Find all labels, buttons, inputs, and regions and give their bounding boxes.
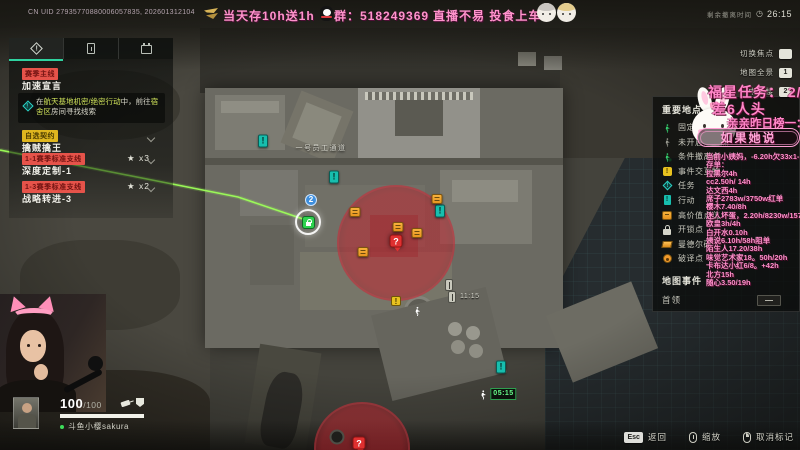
- desc-text: 中，前往: [121, 97, 151, 106]
- operation-marker[interactable]: !: [329, 171, 339, 184]
- runner-conditional-icon: [662, 152, 672, 162]
- boss-label: 首领: [662, 294, 681, 306]
- tab-missions[interactable]: [9, 38, 63, 59]
- unlock-point-marker[interactable]: [295, 209, 321, 235]
- operation-tab-icon: [87, 43, 95, 54]
- uid-text: CN UID 27935770880006057835, 20260131210…: [28, 9, 195, 16]
- hp-fill: [60, 414, 144, 418]
- unlock-icon: [662, 225, 672, 235]
- player-name-row: 斗鱼小樱sakura: [60, 421, 129, 432]
- esc-key-badge: Esc: [624, 432, 642, 443]
- microphone-icon: [88, 356, 103, 371]
- streamer-hand: [34, 364, 48, 380]
- player-name: 斗鱼小樱sakura: [68, 421, 129, 432]
- legend-label: 行动: [678, 195, 695, 206]
- overlay-pill-label: 如果她说: [720, 129, 776, 146]
- high-value-marker[interactable]: [350, 207, 361, 217]
- evac-timer-label: 剩余撤离时间: [707, 9, 752, 19]
- ping-marker[interactable]: 2: [305, 194, 317, 206]
- closed-point-marker[interactable]: [330, 430, 345, 445]
- boss-question-marker[interactable]: ?: [353, 437, 366, 450]
- eye: [38, 344, 41, 347]
- hotkey-switch-focus[interactable]: 切换焦点: [740, 48, 792, 59]
- boss-event-row: 首领 —: [662, 294, 799, 306]
- mission-panel: 赛季主线 加速宣言 在航天基地机密/绝密行动中，前往宿舍区房间寻找线索 自选契约…: [9, 38, 173, 218]
- mission-diamond-icon: [22, 100, 33, 111]
- desc-highlight: 航天基地机密/绝密行动: [44, 97, 121, 106]
- hp-max: /100: [83, 400, 102, 410]
- top-bar: CN UID 27935770880006057835, 20260131210…: [0, 0, 800, 28]
- mouse-right-icon: [743, 432, 751, 443]
- evac-time-value: 26:15: [767, 9, 792, 19]
- evac-timer: 剩余撤离时间 ◷ 26:15: [707, 9, 792, 19]
- operation-icon: !: [662, 195, 672, 205]
- mandel-brick-icon: [662, 239, 672, 249]
- extraction-marker[interactable]: 05:15: [477, 388, 516, 400]
- mission-tabbar: [9, 38, 173, 59]
- keycard-door-marker[interactable]: 11:15: [448, 291, 456, 303]
- tab-events[interactable]: [118, 38, 173, 59]
- hotkey-label: 地图全景: [740, 67, 774, 78]
- zoom-control[interactable]: 缩放: [689, 431, 721, 443]
- tab-operations[interactable]: [63, 38, 118, 59]
- legend-label: 破译点: [678, 253, 704, 264]
- unmark-label: 取消标记: [756, 431, 794, 443]
- event-interact-icon: !: [662, 166, 672, 176]
- unmark-button[interactable]: 取消标记: [743, 431, 794, 443]
- qq-penguin-icon: [320, 6, 333, 21]
- hotkey-map-overview[interactable]: 地图全景 1: [740, 67, 792, 78]
- boss-toggle[interactable]: —: [757, 295, 781, 306]
- high-value-marker[interactable]: [432, 194, 443, 204]
- boss-question-marker[interactable]: ?: [390, 235, 403, 248]
- side2-title[interactable]: 战略转进-3: [22, 192, 72, 205]
- zoom-label: 缩放: [702, 431, 721, 443]
- mouse-scroll-icon: [689, 432, 697, 443]
- avatar: [13, 397, 39, 429]
- hp-current: 100: [60, 396, 83, 411]
- game-screen: !!!!??211:1505:15! 一号员工通道 CN UID 2793577…: [0, 0, 800, 450]
- side1-title[interactable]: 深度定制-1: [22, 164, 72, 177]
- keycard-door-marker[interactable]: [445, 279, 453, 291]
- desc-text: 在: [36, 97, 44, 106]
- promo-recharge: 当天存10h送1h: [223, 7, 315, 24]
- key-badge: 1: [779, 68, 792, 78]
- hp-value: 100/100: [60, 396, 102, 411]
- extraction-marker[interactable]: [412, 306, 423, 317]
- headphone-band: [12, 308, 56, 324]
- microphone-arm: [63, 368, 103, 393]
- legend-label: 开锁点: [678, 224, 704, 235]
- chibi-avatar: [557, 3, 576, 22]
- eye: [27, 344, 30, 347]
- operation-marker[interactable]: !: [496, 361, 506, 374]
- donor-list: 当前小姨妈，-6.20h欠33x1-存单：拉黑尔4hcc2.50h/ 14h达文…: [706, 153, 800, 288]
- syringe-icon: [120, 400, 130, 408]
- key-badge: [779, 49, 792, 59]
- bottom-action-bar: Esc 返回 缩放 取消标记: [624, 431, 794, 443]
- decrypt-icon: [662, 254, 672, 264]
- legend-label: 任务: [678, 180, 695, 191]
- high-value-marker[interactable]: [393, 222, 404, 232]
- mission-diamond-icon: [662, 181, 672, 191]
- player-hud: 100/100 斗鱼小樱sakura: [0, 394, 220, 436]
- back-label: 返回: [648, 431, 667, 443]
- high-value-marker[interactable]: [412, 228, 423, 238]
- wing-icon: [203, 6, 220, 21]
- runner-green-icon: [662, 123, 672, 133]
- armor-plate-icon: [136, 398, 144, 407]
- runner-grey-icon: [662, 137, 672, 147]
- calendar-icon: [141, 45, 152, 54]
- operation-marker[interactable]: !: [258, 135, 268, 148]
- streamer-face: [20, 330, 46, 362]
- mission-desc: 在航天基地机密/绝密行动中，前往宿舍区房间寻找线索: [18, 93, 165, 123]
- back-button[interactable]: Esc 返回: [624, 431, 666, 443]
- donor-line: 随心3.50/19h: [706, 279, 800, 287]
- event-interact-marker[interactable]: !: [391, 296, 401, 306]
- promo-slogan: 直播不易 投食上车: [433, 7, 541, 24]
- hotkey-label: 切换焦点: [740, 48, 774, 59]
- high-value-marker[interactable]: [358, 247, 369, 257]
- mission-title[interactable]: 加速宣言: [22, 79, 62, 92]
- operation-marker[interactable]: !: [435, 205, 445, 218]
- desc-text: 房间寻找线索: [51, 107, 96, 116]
- hp-bar: [60, 414, 144, 418]
- overlay-pill: 如果她说: [697, 128, 800, 147]
- chevron-down-icon[interactable]: [147, 134, 155, 142]
- promo-group: 群：518249369: [334, 7, 429, 24]
- online-dot: [60, 425, 64, 429]
- high-value-icon: [662, 210, 672, 220]
- clock-icon: ◷: [756, 10, 763, 18]
- exclaim-diamond-icon: [30, 42, 43, 55]
- map-area-label: 一号员工通道: [296, 143, 347, 153]
- chibi-avatar: [537, 3, 556, 22]
